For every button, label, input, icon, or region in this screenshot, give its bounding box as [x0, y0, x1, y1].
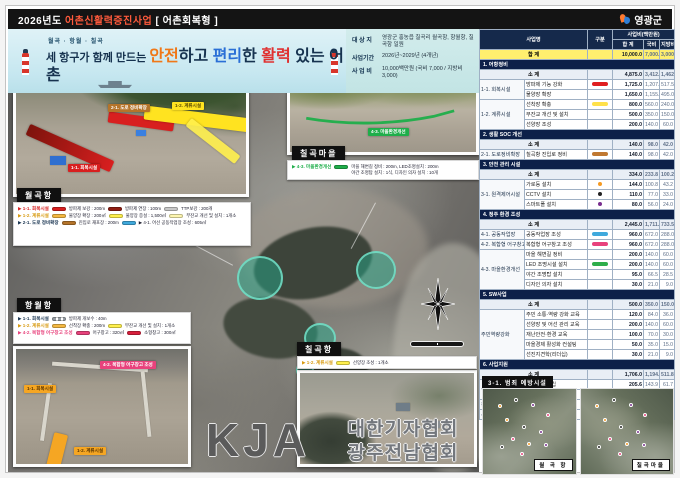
chilgok-port-title: 칠곡항 [297, 342, 341, 357]
cell-empty [588, 300, 613, 310]
cell-local: 33.0 [660, 190, 675, 200]
col-sub: 지방비 [660, 40, 675, 50]
item-cell: LED 조명시설 설치 [525, 260, 588, 270]
cell-total: 200.0 [613, 250, 644, 260]
cell-national: 98.0 [644, 150, 660, 160]
text-part: 편리 [213, 48, 242, 65]
cell-total: 500.0 [613, 110, 644, 120]
legend-text: ▶ 4-1. 어선 공동작업장 조성 : 605㎡ [139, 220, 207, 226]
cell-total: 80.0 [613, 200, 644, 210]
chilgok-port-legend: ▶ 1-2. 계류시설선양장 조성 : 1개소 [297, 356, 477, 369]
mark-cell [588, 230, 613, 240]
item-row: 4-1. 공동작업장공동작업장 조성960.0672.0288.0 [480, 230, 675, 240]
cell-national: 350.0 [644, 110, 660, 120]
section-row: 4. 정주 환경 조성 [480, 210, 675, 220]
cell-local: 240.0 [660, 100, 675, 110]
text-part: 2026년도 [18, 16, 65, 27]
info-value: 영광군 홍농읍 칠곡리 월곡항, 항월항, 칠곡항 일원 [382, 35, 474, 49]
subtotal-label: 소 계 [480, 170, 588, 180]
cell-total: 4,875.0 [613, 70, 644, 80]
item-row: 1-2. 계류시설선착장 확충800.0560.0240.0 [480, 100, 675, 110]
watermark-kja: KJA [206, 413, 310, 467]
wolgok-title: 월곡항 [17, 188, 61, 203]
text-part: 세 항구가 함께 만드는 [46, 52, 149, 64]
legend-swatch [169, 214, 183, 218]
total-row: 합 계10,000.07,000.03,000.0 [480, 50, 675, 60]
subtotal-row: 소 계334.0233.8100.2 [480, 170, 675, 180]
col-name: 사업명 [480, 30, 588, 50]
overlay-tag: 1-2. 계류시설 [74, 447, 106, 455]
legend-text: 마을 해변길 정비 : 200m, LED조명설치 : 200m 야간 조명탑 … [351, 164, 438, 176]
total-label: 합 계 [480, 50, 588, 60]
cell-total: 334.0 [613, 170, 644, 180]
text-part: 활력 [261, 48, 290, 65]
col-sub: 합 계 [613, 40, 644, 50]
cell-national: 233.8 [644, 170, 660, 180]
poster-frame: 2026년도 어촌신활력증진사업 [ 어촌회복형 ] 영광군 월곡 · 항월 ·… [5, 5, 675, 473]
mark-cell [588, 80, 613, 90]
legend-text: 방파제 개보수 : 40m [69, 316, 107, 322]
legend-text: 방파제 연장 : 100m [125, 206, 161, 212]
item-cell: 디자인 의자 설치 [525, 280, 588, 290]
item-cell: 재난안전·환경 교육 [525, 330, 588, 340]
budget-table-body: 합 계10,000.07,000.03,000.01. 어항정비소 계4,875… [480, 50, 675, 420]
overlay-tag: 1-2. 계류시설 [172, 102, 204, 110]
scale-bar [410, 341, 464, 347]
cell-local: 42.0 [660, 150, 675, 160]
facility-dot [500, 445, 504, 449]
legend-swatch [62, 221, 76, 225]
cell-total: 200.0 [613, 260, 644, 270]
item-cell: 물양장 확장 [525, 90, 588, 100]
cell-total: 120.0 [613, 310, 644, 320]
cell-total: 50.0 [613, 340, 644, 350]
wolgok-legend: ▶ 1-1. 회복시설방파제 보강 : 200m방파제 연장 : 100mTTP… [13, 202, 251, 246]
category-cell: 4-3. 마을환경개선 [480, 250, 525, 290]
overlay-tag: 4-3. 마을환경개선 [368, 128, 409, 136]
poster-page: 2026년도 어촌신활력증진사업 [ 어촌회복형 ] 영광군 월곡 · 항월 ·… [0, 0, 680, 478]
legend-label: ▶ 4-2. 복합형 어구창고 조성 [18, 330, 73, 336]
facility-dot [636, 430, 640, 434]
section-title: 2. 생활 SOC 개선 [480, 130, 675, 140]
mark-cell [588, 250, 613, 260]
cell-local: 517.5 [660, 80, 675, 90]
col-sub: 국비 [644, 40, 660, 50]
mark-cell [588, 190, 613, 200]
cell-empty [588, 220, 613, 230]
cell-total: 1,650.0 [613, 90, 644, 100]
subtotal-row: 소 계500.0350.0150.0 [480, 300, 675, 310]
legend-text: 물양장 확장 : 200㎡ [69, 213, 106, 219]
section-title: 6. 사업지원 [480, 360, 675, 370]
budget-panel: 사업명구분사업비(백만원)합 계국비지방비 합 계10,000.07,000.0… [479, 29, 674, 472]
item-cell: 선양장 조성 [525, 120, 588, 130]
overlay-tag: 2-1. 도로 정비확장 [108, 104, 150, 112]
section-title: 3. 안전 관리 시설 [480, 160, 675, 170]
mark-cell [588, 330, 613, 340]
mark-cell [588, 350, 613, 360]
cell-local: 733.5 [660, 220, 675, 230]
legend-text: 진입로 재포장 : 200m [79, 220, 119, 226]
cell-national: 35.0 [644, 340, 660, 350]
legend-row: ▶ 2-1. 도로 정비확장진입로 재포장 : 200m▶ 4-1. 어선 공동… [18, 220, 246, 226]
legend-swatch [334, 165, 348, 169]
type-swatch [592, 152, 608, 156]
legend-swatch [52, 324, 66, 328]
cell-national: 1,194.2 [644, 370, 660, 380]
item-cell: 스마트폴 설치 [525, 200, 588, 210]
focus-area-chilgok-village [356, 251, 396, 289]
text-part: 한 [242, 48, 261, 65]
legend-swatch [109, 214, 123, 218]
cell-empty [588, 70, 613, 80]
page-title: 2026년도 어촌신활력증진사업 [ 어촌회복형 ] [18, 12, 218, 27]
cell-national: 1,155.0 [644, 90, 660, 100]
cell-empty [588, 50, 613, 60]
type-swatch [592, 242, 608, 246]
cell-national: 140.0 [644, 260, 660, 270]
facility-dot [539, 430, 543, 434]
legend-row: ▶ 1-1. 회복시설방파제 개보수 : 40m [18, 316, 186, 322]
cell-national: 672.0 [644, 230, 660, 240]
compass-icon [421, 278, 455, 330]
cell-local: 150.0 [660, 300, 675, 310]
cell-local: 60.0 [660, 250, 675, 260]
info-label: 대 상 지 [352, 35, 382, 49]
col-type: 구분 [588, 30, 613, 50]
mark-cell [588, 260, 613, 270]
cell-national: 1,207.5 [644, 80, 660, 90]
legend-swatch [52, 317, 66, 321]
category-cell: 주민역량강화 [480, 310, 525, 360]
legend-swatch [52, 214, 66, 218]
cell-local: 1,462.5 [660, 70, 675, 80]
facility-dot [531, 403, 535, 407]
cell-local: 60.0 [660, 320, 675, 330]
crime-photo-chilgok: 칠곡마을 [580, 388, 675, 475]
legend-swatch [108, 324, 122, 328]
cell-local: 9.0 [660, 280, 675, 290]
cell-empty [588, 140, 613, 150]
item-cell: 칠곡항 진입로 정비 [525, 150, 588, 160]
hangwol-photo-card: 1-1. 회복시설 4-2. 복합형 어구창고 조성 1-2. 계류시설 [13, 346, 191, 467]
text-part: 어촌신활력증진사업 [65, 16, 152, 27]
info-value: 10,000백만원 (국비 7,000 / 지방비 3,000) [382, 66, 474, 80]
item-cell: 주민 소통·역량 강화 교육 [525, 310, 588, 320]
cell-national: 560.0 [644, 100, 660, 110]
lighthouse-icon [22, 53, 29, 75]
legend-swatch [164, 207, 178, 211]
legend-text: 소형창고 : 300㎡ [144, 330, 176, 336]
cell-local: 28.5 [660, 270, 675, 280]
mark-cell [588, 320, 613, 330]
cell-national: 21.0 [644, 350, 660, 360]
text-part: [ 어촌회복형 ] [152, 16, 218, 27]
legend-text: 방파제 보강 : 200m [69, 206, 105, 212]
crime-prevention-photos: 월 곡 항 칠곡마을 [482, 388, 674, 475]
section-title: 4. 정주 환경 조성 [480, 210, 675, 220]
col-amount: 사업비(백만원) [613, 30, 675, 40]
project-info: 대 상 지 영광군 홍농읍 칠곡리 월곡항, 항월항, 칠곡항 일원 사업기간 … [346, 29, 479, 93]
watermark-association: 대한기자협회 광주전남협회 [323, 418, 479, 466]
item-row: 3-1. 원격제어시설가로등 설치144.0100.843.2 [480, 180, 675, 190]
county-logo-text: 영광군 [634, 12, 662, 27]
mark-cell [588, 340, 613, 350]
cell-total: 960.0 [613, 230, 644, 240]
legend-swatch [108, 207, 122, 211]
legend-label: ▶ 2-1. 도로 정비확장 [18, 220, 59, 226]
county-logo: 영광군 [619, 12, 662, 27]
focus-area-wolgok [237, 256, 283, 300]
cell-national: 100.8 [644, 180, 660, 190]
section-row: 5. SW사업 [480, 290, 675, 300]
info-row: 사 업 비 10,000백만원 (국비 7,000 / 지방비 3,000) [352, 66, 474, 80]
type-dot [598, 202, 602, 206]
info-label: 사업기간 [352, 53, 382, 62]
cell-total: 960.0 [613, 240, 644, 250]
slogan-main: 세 항구가 함께 만드는 안전하고 편리한 활력 있는 어촌 [46, 47, 346, 85]
cell-total: 2,445.0 [613, 220, 644, 230]
mark-cell [588, 310, 613, 320]
legend-row: ▶ 1-2. 계류시설선양장 조성 : 1개소 [302, 360, 472, 366]
cell-national: 3,412.5 [644, 70, 660, 80]
cell-national: 70.0 [644, 330, 660, 340]
mark-cell [588, 200, 613, 210]
type-dot [598, 192, 602, 196]
item-row: 주민역량강화주민 소통·역량 강화 교육120.084.036.0 [480, 310, 675, 320]
crime-photo-label: 칠곡마을 [632, 459, 670, 471]
facility-dot [608, 437, 612, 441]
cell-national: 140.0 [644, 320, 660, 330]
subtotal-label: 소 계 [480, 300, 588, 310]
category-cell: 1-1. 회복시설 [480, 80, 525, 100]
facility-dot [520, 452, 524, 456]
subtotal-row: 소 계4,875.03,412.51,462.5 [480, 70, 675, 80]
mark-cell [588, 180, 613, 190]
legend-swatch [122, 221, 136, 225]
cell-national: 66.5 [644, 270, 660, 280]
facility-dot [511, 437, 515, 441]
overlay-tag: 1-1. 회복시설 [24, 385, 56, 393]
building-roof [396, 403, 410, 411]
legend-swatch [336, 361, 350, 365]
subtotal-label: 소 계 [480, 70, 588, 80]
legend-text: 선양장 조성 : 1개소 [353, 360, 389, 366]
facility-dot [546, 413, 550, 417]
county-logo-icon [619, 13, 631, 25]
mark-cell [588, 150, 613, 160]
chilgok-village-title: 칠곡마을 [292, 146, 345, 161]
facility-dot [625, 442, 629, 446]
legend-text: 부잔교 개선 및 설치 : 1개소 [125, 323, 175, 329]
legend-label: ▶ 1-2. 계류시설 [302, 360, 333, 366]
legend-text: 부잔교 개선 및 설치 : 1개소 [186, 213, 236, 219]
legend-row: ▶ 4-2. 복합형 어구창고 조성어구창고 : 320㎡소형창고 : 300㎡ [18, 330, 186, 336]
subtotal-row: 소 계140.098.042.0 [480, 140, 675, 150]
title-bar: 2026년도 어촌신활력증진사업 [ 어촌회복형 ] 영광군 [8, 9, 672, 29]
budget-table-head: 사업명구분사업비(백만원)합 계국비지방비 [480, 30, 675, 50]
mark-cell [588, 270, 613, 280]
legend-swatch [52, 207, 66, 211]
overlay-tag: 1-1. 회복시설 [68, 164, 100, 172]
cell-total: 110.0 [613, 190, 644, 200]
item-row: 4-3. 마을환경개선마을 해변길 정비200.0140.060.0 [480, 250, 675, 260]
category-cell: 3-1. 원격제어시설 [480, 180, 525, 210]
cell-local: 150.0 [660, 110, 675, 120]
cell-total: 1,706.0 [613, 370, 644, 380]
section-row: 6. 사업지원 [480, 360, 675, 370]
cell-total: 95.0 [613, 270, 644, 280]
info-value: 2026년~2029년 (4개년) [382, 53, 438, 62]
building-roof [50, 156, 66, 165]
info-row: 사업기간 2026년~2029년 (4개년) [352, 53, 474, 62]
legend-label: ▶ 1-1. 회복시설 [18, 206, 49, 212]
legend-text: 선착장 확충 : 200m [69, 323, 105, 329]
cell-national: 77.0 [644, 190, 660, 200]
cell-total: 800.0 [613, 100, 644, 110]
item-cell: 야간 조명탑 설치 [525, 270, 588, 280]
subtotal-label: 소 계 [480, 220, 588, 230]
item-cell: 선진지견학(리더십) [525, 350, 588, 360]
section-row: 1. 어항정비 [480, 60, 675, 70]
item-row: 2-1. 도로정비확장칠곡항 진입로 정비140.098.042.0 [480, 150, 675, 160]
facility-dot [618, 452, 622, 456]
cell-total: 30.0 [613, 280, 644, 290]
section-row: 2. 생활 SOC 개선 [480, 130, 675, 140]
item-cell: 선착장 확충 [525, 100, 588, 110]
hangwol-legend: ▶ 1-1. 회복시설방파제 개보수 : 40m▶ 1-2. 계류시설선착장 확… [13, 312, 191, 344]
cell-total: 144.0 [613, 180, 644, 190]
legend-text: TTP보강 : 200개 [181, 206, 212, 212]
cell-total: 10,000.0 [613, 50, 644, 60]
item-cell: 부잔교 개선 및 설치 [525, 110, 588, 120]
cell-local: 511.8 [660, 370, 675, 380]
item-cell: 복합형 어구창고 조성 [525, 240, 588, 250]
cell-local: 42.0 [660, 140, 675, 150]
category-cell: 4-2. 복합형 어구창고 [480, 240, 525, 250]
cell-local: 15.0 [660, 340, 675, 350]
crime-photo-label: 월 곡 항 [534, 459, 572, 471]
cell-empty [588, 170, 613, 180]
cell-total: 30.0 [613, 350, 644, 360]
item-cell: CCTV 설치 [525, 190, 588, 200]
text-part: 하고 [179, 48, 213, 65]
cell-national: 140.0 [644, 120, 660, 130]
type-dot [598, 182, 602, 186]
legend-swatch [76, 331, 90, 335]
cell-local: 9.0 [660, 350, 675, 360]
facility-dot [629, 403, 633, 407]
item-row: 4-2. 복합형 어구창고복합형 어구창고 조성960.0672.0288.0 [480, 240, 675, 250]
subtotal-row: 소 계2,445.01,711.5733.5 [480, 220, 675, 230]
cell-total: 200.0 [613, 120, 644, 130]
info-label: 사 업 비 [352, 66, 382, 80]
item-cell: 공동작업장 조성 [525, 230, 588, 240]
hangwol-title: 항월항 [17, 298, 61, 313]
cell-local: 288.0 [660, 240, 675, 250]
legend-label: ▶ 1-1. 회복시설 [18, 316, 49, 322]
mark-cell [588, 120, 613, 130]
item-cell: 마을경제 활성화 컨설팅 [525, 340, 588, 350]
cell-national: 350.0 [644, 300, 660, 310]
category-cell: 4-1. 공동작업장 [480, 230, 525, 240]
crime-photo-wolgok: 월 곡 항 [482, 388, 577, 475]
type-swatch [592, 232, 608, 236]
item-cell: 선양장 및 어선 관리 교육 [525, 320, 588, 330]
legend-label: ▶ 1-2. 계류시설 [18, 213, 49, 219]
facility-dot [522, 425, 526, 429]
budget-table: 사업명구분사업비(백만원)합 계국비지방비 합 계10,000.07,000.0… [479, 29, 675, 420]
legend-row: ▶ 1-2. 계류시설선착장 확충 : 200m부잔교 개선 및 설치 : 1개… [18, 323, 186, 329]
cell-national: 1,711.5 [644, 220, 660, 230]
section-title: 5. SW사업 [480, 290, 675, 300]
facility-dot [603, 418, 607, 422]
facility-dot [612, 398, 616, 402]
type-swatch [592, 262, 608, 266]
cell-national: 84.0 [644, 310, 660, 320]
category-cell: 1-2. 계류시설 [480, 100, 525, 130]
mark-cell [588, 280, 613, 290]
overlay-tag: 4-2. 복합형 어구창고 조성 [100, 361, 156, 369]
cell-total: 140.0 [613, 150, 644, 160]
type-swatch [592, 82, 608, 86]
cell-local: 36.0 [660, 310, 675, 320]
section-row: 3. 안전 관리 시설 [480, 160, 675, 170]
mark-cell [588, 90, 613, 100]
cell-local: 288.0 [660, 230, 675, 240]
mark-cell [588, 110, 613, 120]
legend-row: ▶ 4-3. 마을환경개선마을 해변길 정비 : 200m, LED조명설치 :… [292, 164, 474, 176]
cell-national: 140.0 [644, 250, 660, 260]
mark-cell [588, 240, 613, 250]
subtotal-label: 소 계 [480, 140, 588, 150]
legend-label: ▶ 1-2. 계류시설 [18, 323, 49, 329]
type-swatch [592, 102, 608, 106]
cell-local: 3,000.0 [660, 50, 675, 60]
cell-national: 98.0 [644, 140, 660, 150]
cell-national: 56.0 [644, 200, 660, 210]
legend-text: 어구창고 : 320㎡ [93, 330, 125, 336]
cell-national: 672.0 [644, 240, 660, 250]
text-part: 안전 [149, 48, 178, 65]
cell-national: 21.0 [644, 280, 660, 290]
legend-swatch [127, 331, 141, 335]
cell-total: 500.0 [613, 300, 644, 310]
chilgok-village-legend: ▶ 4-3. 마을환경개선마을 해변길 정비 : 200m, LED조명설치 :… [287, 160, 479, 180]
cell-national: 7,000.0 [644, 50, 660, 60]
cell-total: 140.0 [613, 140, 644, 150]
item-cell: 가로등 설치 [525, 180, 588, 190]
cell-local: 30.0 [660, 330, 675, 340]
cell-local: 60.0 [660, 120, 675, 130]
legend-row: ▶ 1-2. 계류시설물양장 확장 : 200㎡물양장 증설 : 1,500㎡부… [18, 213, 246, 219]
cell-total: 1,725.0 [613, 80, 644, 90]
item-row: 1-1. 회복시설방파제 기능 강화1,725.01,207.5517.5 [480, 80, 675, 90]
cell-local: 43.2 [660, 180, 675, 190]
cell-local: 60.0 [660, 260, 675, 270]
info-row: 대 상 지 영광군 홍농읍 칠곡리 월곡항, 항월항, 칠곡항 일원 [352, 35, 474, 49]
cell-empty [588, 370, 613, 380]
section-title: 1. 어항정비 [480, 60, 675, 70]
item-cell: 마을 해변길 정비 [525, 250, 588, 260]
cell-local: 100.2 [660, 170, 675, 180]
cell-total: 100.0 [613, 330, 644, 340]
cell-total: 200.0 [613, 320, 644, 330]
legend-text: 물양장 증설 : 1,500㎡ [126, 213, 166, 219]
legend-label: ▶ 4-3. 마을환경개선 [292, 164, 331, 170]
cell-local: 495.0 [660, 90, 675, 100]
mark-cell [588, 100, 613, 110]
